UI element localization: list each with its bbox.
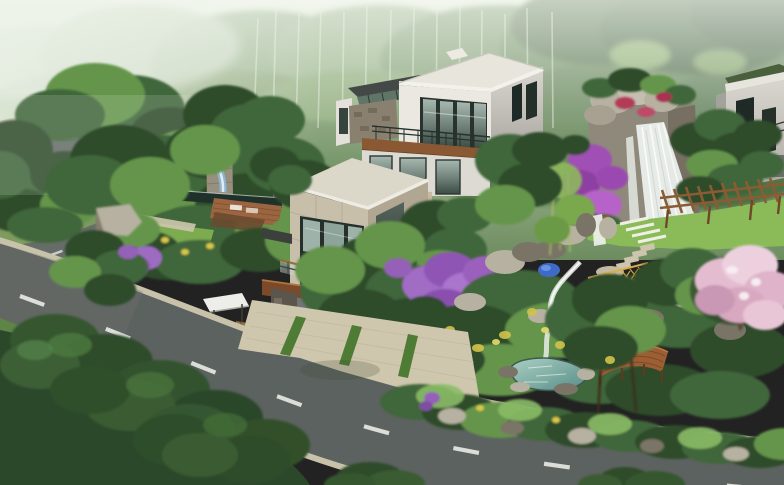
upper-side-window [526, 81, 537, 120]
side-wall-window [339, 108, 348, 134]
lounge-chair [246, 207, 258, 213]
tree-shadow [300, 360, 380, 380]
lounge-chair [230, 204, 242, 210]
rendering-canvas [0, 0, 784, 485]
upper-side-window [512, 83, 522, 122]
stone-base-wall [349, 99, 398, 144]
villa-rendering [0, 0, 784, 485]
blue-tarp-highlight [541, 265, 551, 271]
